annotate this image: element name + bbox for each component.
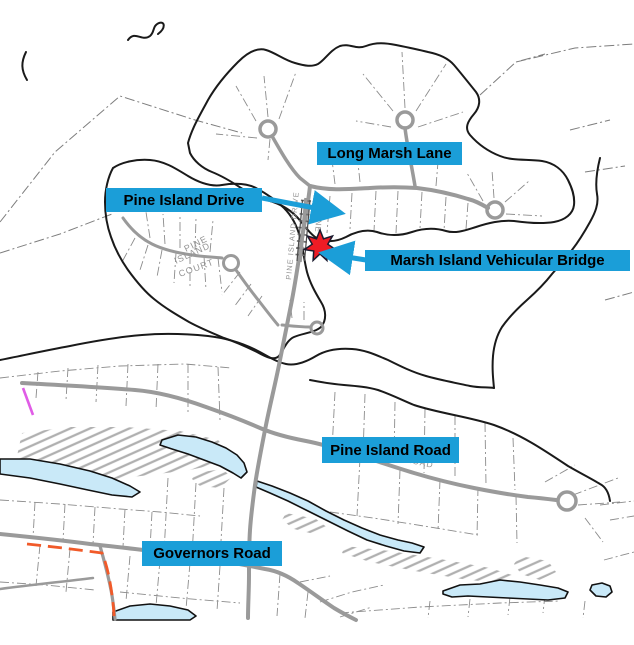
water-right-edge [590,583,612,597]
water-bottom [443,580,568,600]
roads [0,112,576,620]
culdesac-nw [260,121,276,137]
callout-pine-island-drive: Pine Island Drive [106,188,262,212]
parcel-lines-midwest [0,364,232,420]
marsh-hatch-areas [17,427,556,584]
callout-long-marsh-lane: Long Marsh Lane [317,142,462,165]
map-drawing: PINE ISLAND COURT PINE ISLAND DRIVE PINE… [0,0,634,645]
callout-pine-island-road: Pine Island Road [322,437,459,463]
culdesac-court [224,256,239,271]
shoreline-east-coast [493,158,600,388]
culdesac-east [487,202,503,218]
left-edge-arc [22,52,27,80]
map-canvas: PINE ISLAND COURT PINE ISLAND DRIVE PINE… [0,0,634,645]
magenta-boundary [23,388,33,415]
culdesac-pine-island-road [558,492,576,510]
creek-squiggle [128,23,164,40]
water-bottom-edge [113,604,196,620]
parcel-lines-lower-right [330,458,634,560]
street-text-drive-fragment: PINE [313,210,324,233]
road-pine-island-court [123,218,222,258]
culdesac-north [397,112,413,128]
shoreline-channel-north [0,334,494,388]
callout-marsh-island-vehicular-bridge: Marsh Island Vehicular Bridge [365,250,630,271]
arrow-bridge [328,254,366,260]
road-long-marsh-lane [310,186,488,208]
callout-governors-road: Governors Road [142,541,282,566]
